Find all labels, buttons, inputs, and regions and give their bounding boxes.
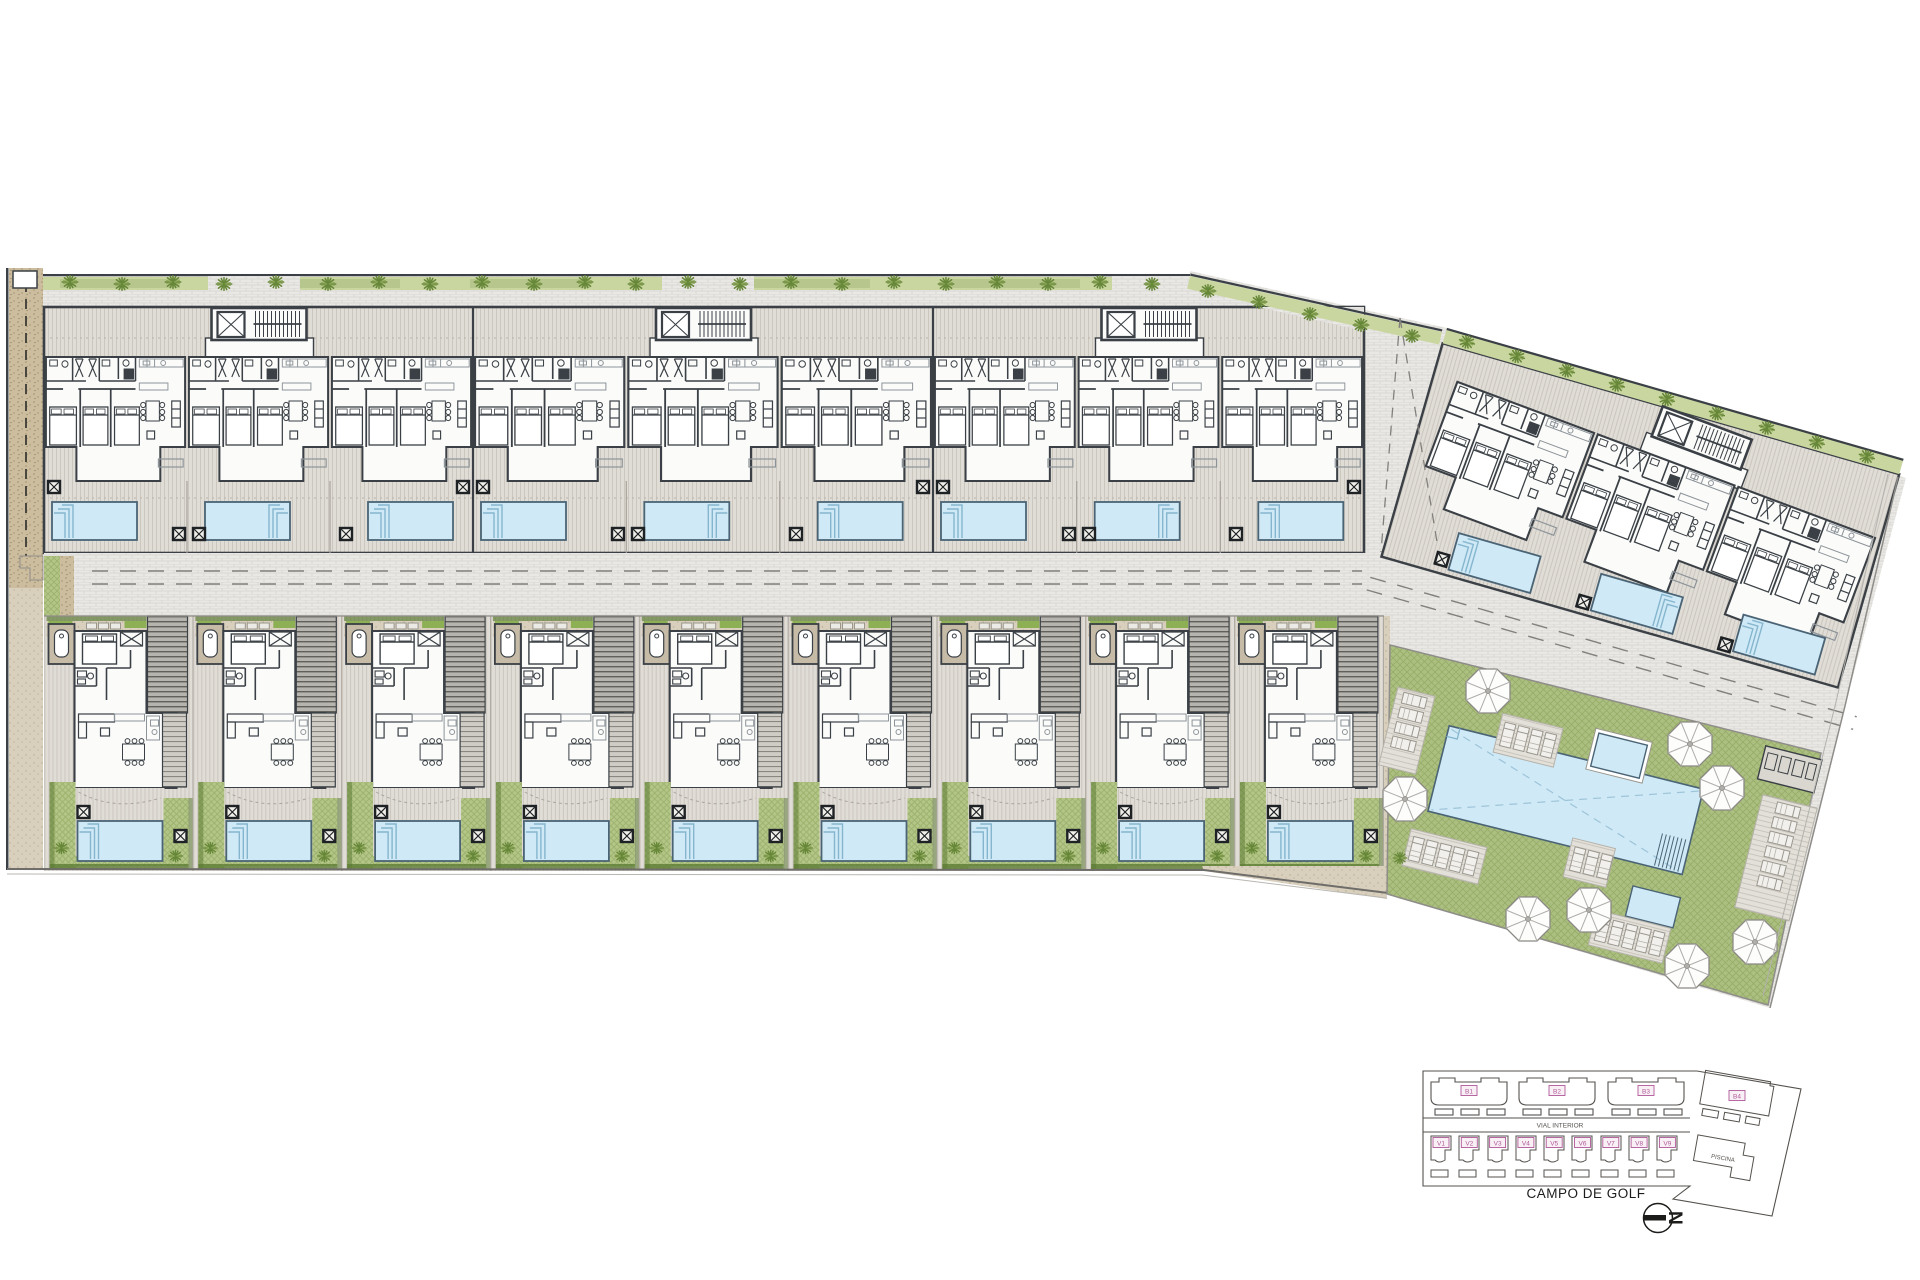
svg-text:V4: V4	[1522, 1141, 1530, 1148]
svg-text:V9: V9	[1663, 1141, 1671, 1148]
svg-text:N: N	[1664, 1211, 1685, 1225]
svg-text:V1: V1	[1437, 1141, 1445, 1148]
svg-text:V8: V8	[1635, 1141, 1643, 1148]
svg-text:V5: V5	[1550, 1141, 1558, 1148]
svg-text:B4: B4	[1733, 1094, 1741, 1101]
svg-text:CAMPO DE GOLF: CAMPO DE GOLF	[1526, 1186, 1645, 1201]
svg-text:VIAL INTERIOR: VIAL INTERIOR	[1537, 1123, 1584, 1130]
svg-text:V3: V3	[1494, 1141, 1502, 1148]
svg-text:B2: B2	[1553, 1089, 1561, 1096]
svg-text:V6: V6	[1579, 1141, 1587, 1148]
svg-text:V2: V2	[1465, 1141, 1473, 1148]
svg-text:B3: B3	[1642, 1089, 1650, 1096]
svg-text:V7: V7	[1607, 1141, 1615, 1148]
svg-text:B1: B1	[1465, 1089, 1473, 1096]
